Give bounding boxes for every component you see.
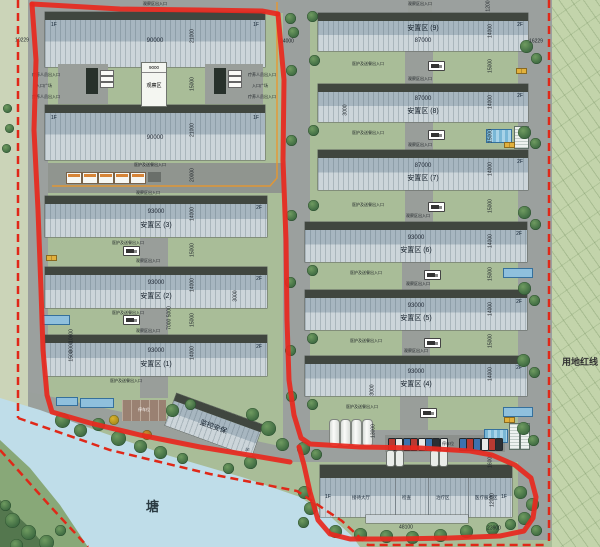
dimension-label: 16000 (489, 454, 494, 468)
entry-bottom-label: 医护及送餐出入口 (112, 241, 144, 245)
dimension-label: 12000 (491, 493, 496, 507)
entry-bottom-label: 医护及送餐出入口 (352, 62, 384, 66)
entry-top-label: 观察区出入口 (136, 191, 160, 195)
parking-label: 停车位 (442, 442, 454, 446)
dimension-label: 3000 (371, 384, 376, 395)
side-entry-label: 入口广场 (252, 84, 268, 88)
dimension-label: 14000 (489, 24, 494, 38)
dimension-label: 15000 (489, 59, 494, 73)
entry-top-label: 观察区出入口 (408, 2, 432, 6)
dimension-label: 21000 (191, 29, 196, 43)
dimension-label: 14000 (489, 302, 494, 316)
dimension-label: 16229 (529, 40, 543, 45)
pond-label: 塘 (146, 496, 161, 515)
dimension-label: 15000 (489, 199, 494, 213)
dimension-label: 1500 (70, 350, 75, 361)
dimension-layer: 2100015000210002000014000150001400015000… (0, 0, 600, 547)
entry-bottom-label: 医护及送餐出入口 (110, 379, 142, 383)
dimension-label: 24000 (280, 40, 294, 45)
dimension-label: 21000 (191, 123, 196, 137)
entry-top-label: 观察区出入口 (136, 259, 160, 263)
entry-bottom-label: 医护及送餐出入口 (346, 405, 378, 409)
dimension-label: 14000 (191, 278, 196, 292)
dimension-label: 14000 (489, 234, 494, 248)
entry-bottom-label: 医护及送餐出入口 (352, 131, 384, 135)
entry-top-label: 观察区出入口 (408, 143, 432, 147)
entry-bottom-label: 医护及送餐出入口 (350, 271, 382, 275)
dimension-label: 3000 (234, 290, 239, 301)
side-entry-label: 疗养人员出入口 (248, 95, 276, 99)
entry-top-label: 观察区出入口 (404, 349, 428, 353)
entry-bottom-label: 医护及送餐出入口 (352, 203, 384, 207)
dimension-label: 15000 (489, 129, 494, 143)
entry-top-label: 观察区出入口 (406, 282, 430, 286)
side-entry-label: 疗养人员出入口 (32, 95, 60, 99)
red-line-label: 用地红线 (562, 355, 598, 368)
dimension-label: 15000 (191, 77, 196, 91)
dimension-label: 14000 (191, 207, 196, 221)
entry-top-label: 观察区出入口 (406, 214, 430, 218)
dimension-label: 14000 (489, 95, 494, 109)
site-plan: 停车位 1F 1F 90000 1F 1F 90000 90 (0, 0, 600, 547)
dimension-label: 20000 (191, 168, 196, 182)
dimension-label: 7000 5000 (168, 306, 173, 330)
dimension-label: 1200 (487, 0, 492, 11)
dimension-label: 13000 (372, 424, 377, 438)
dimension-label: 15000 (191, 313, 196, 327)
dimension-label: 3000 (344, 104, 349, 115)
dimension-label: 15000 (489, 267, 494, 281)
dimension-label: 23900 (487, 527, 501, 532)
dimension-label: 15000 (489, 334, 494, 348)
dimension-label: 14000 (191, 346, 196, 360)
dimension-label: 15000 (191, 243, 196, 257)
entry-bottom-label: 医护及送餐出入口 (134, 163, 166, 167)
dimension-label: 14000 (489, 162, 494, 176)
side-entry-label: 入口广场 (36, 84, 52, 88)
entry-top-label: 观察区出入口 (143, 2, 167, 6)
entry-bottom-label: 医护及送餐出入口 (350, 339, 382, 343)
side-entry-label: 疗养人员出入口 (32, 73, 60, 77)
side-entry-label: 疗养人员出入口 (248, 73, 276, 77)
dimension-label: 48100 (399, 526, 413, 531)
dimension-label: 10229 (15, 39, 29, 44)
entry-top-label: 观察区出入口 (408, 77, 432, 81)
dimension-label: 14000 (489, 367, 494, 381)
entry-top-label: 观察区出入口 (136, 329, 160, 333)
entry-bottom-label: 医护及送餐出入口 (112, 311, 144, 315)
